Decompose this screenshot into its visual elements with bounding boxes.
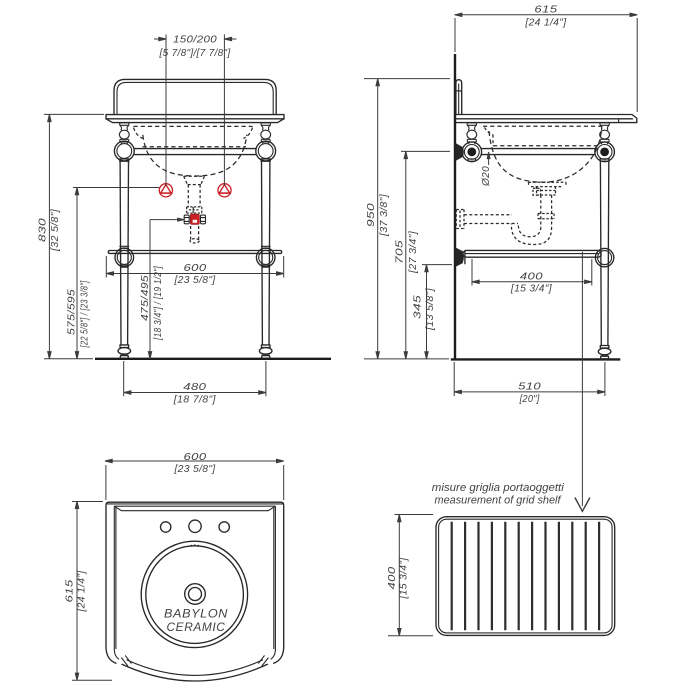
svg-text:[18 7/8"]: [18 7/8"] [173,394,217,405]
svg-text:830: 830 [38,218,49,242]
svg-text:Ø20: Ø20 [481,166,492,187]
svg-text:[15 3/4"]: [15 3/4"] [510,284,553,295]
svg-text:[18 3/4"] / [19 1/2"]: [18 3/4"] / [19 1/2"] [153,265,164,340]
svg-text:400: 400 [387,567,398,590]
svg-text:[22 5/8"] / [23 3/8"]: [22 5/8"] / [23 3/8"] [80,280,91,348]
svg-text:[24 1/4"]: [24 1/4"] [524,17,567,28]
svg-text:345: 345 [413,295,424,319]
svg-text:615: 615 [65,580,76,603]
svg-text:150/200: 150/200 [173,35,217,46]
svg-text:575/595: 575/595 [67,289,78,335]
svg-text:[23 5/8"]: [23 5/8"] [174,464,217,475]
svg-text:misure griglia portaoggetti: misure griglia portaoggetti [432,482,564,494]
svg-text:BABYLON: BABYLON [164,607,228,621]
svg-text:[24 1/4"]: [24 1/4"] [77,570,88,613]
svg-text:[13 5/8"]: [13 5/8"] [425,287,436,331]
svg-text:950: 950 [366,203,377,227]
svg-text:615: 615 [534,4,557,15]
svg-text:600: 600 [184,263,207,274]
svg-text:measurement of grid shelf: measurement of grid shelf [435,494,563,506]
svg-text:600: 600 [184,452,207,463]
svg-text:[27 3/4"]: [27 3/4"] [408,230,419,274]
svg-text:400: 400 [520,271,543,282]
svg-text:CERAMIC: CERAMIC [167,620,226,634]
svg-text:705: 705 [395,240,406,264]
svg-text:510: 510 [518,382,541,393]
svg-text:[20"]: [20"] [519,394,541,405]
svg-text:[15 3/4"]: [15 3/4"] [399,557,410,600]
svg-text:475/495: 475/495 [140,275,151,321]
svg-text:[32 5/8"]: [32 5/8"] [50,208,61,252]
svg-text:[5 7/8"]/[7 7/8"]: [5 7/8"]/[7 7/8"] [159,48,232,59]
svg-text:480: 480 [183,382,206,393]
svg-text:[23 5/8"]: [23 5/8"] [174,275,217,286]
svg-text:[37 3/8"]: [37 3/8"] [379,193,390,237]
